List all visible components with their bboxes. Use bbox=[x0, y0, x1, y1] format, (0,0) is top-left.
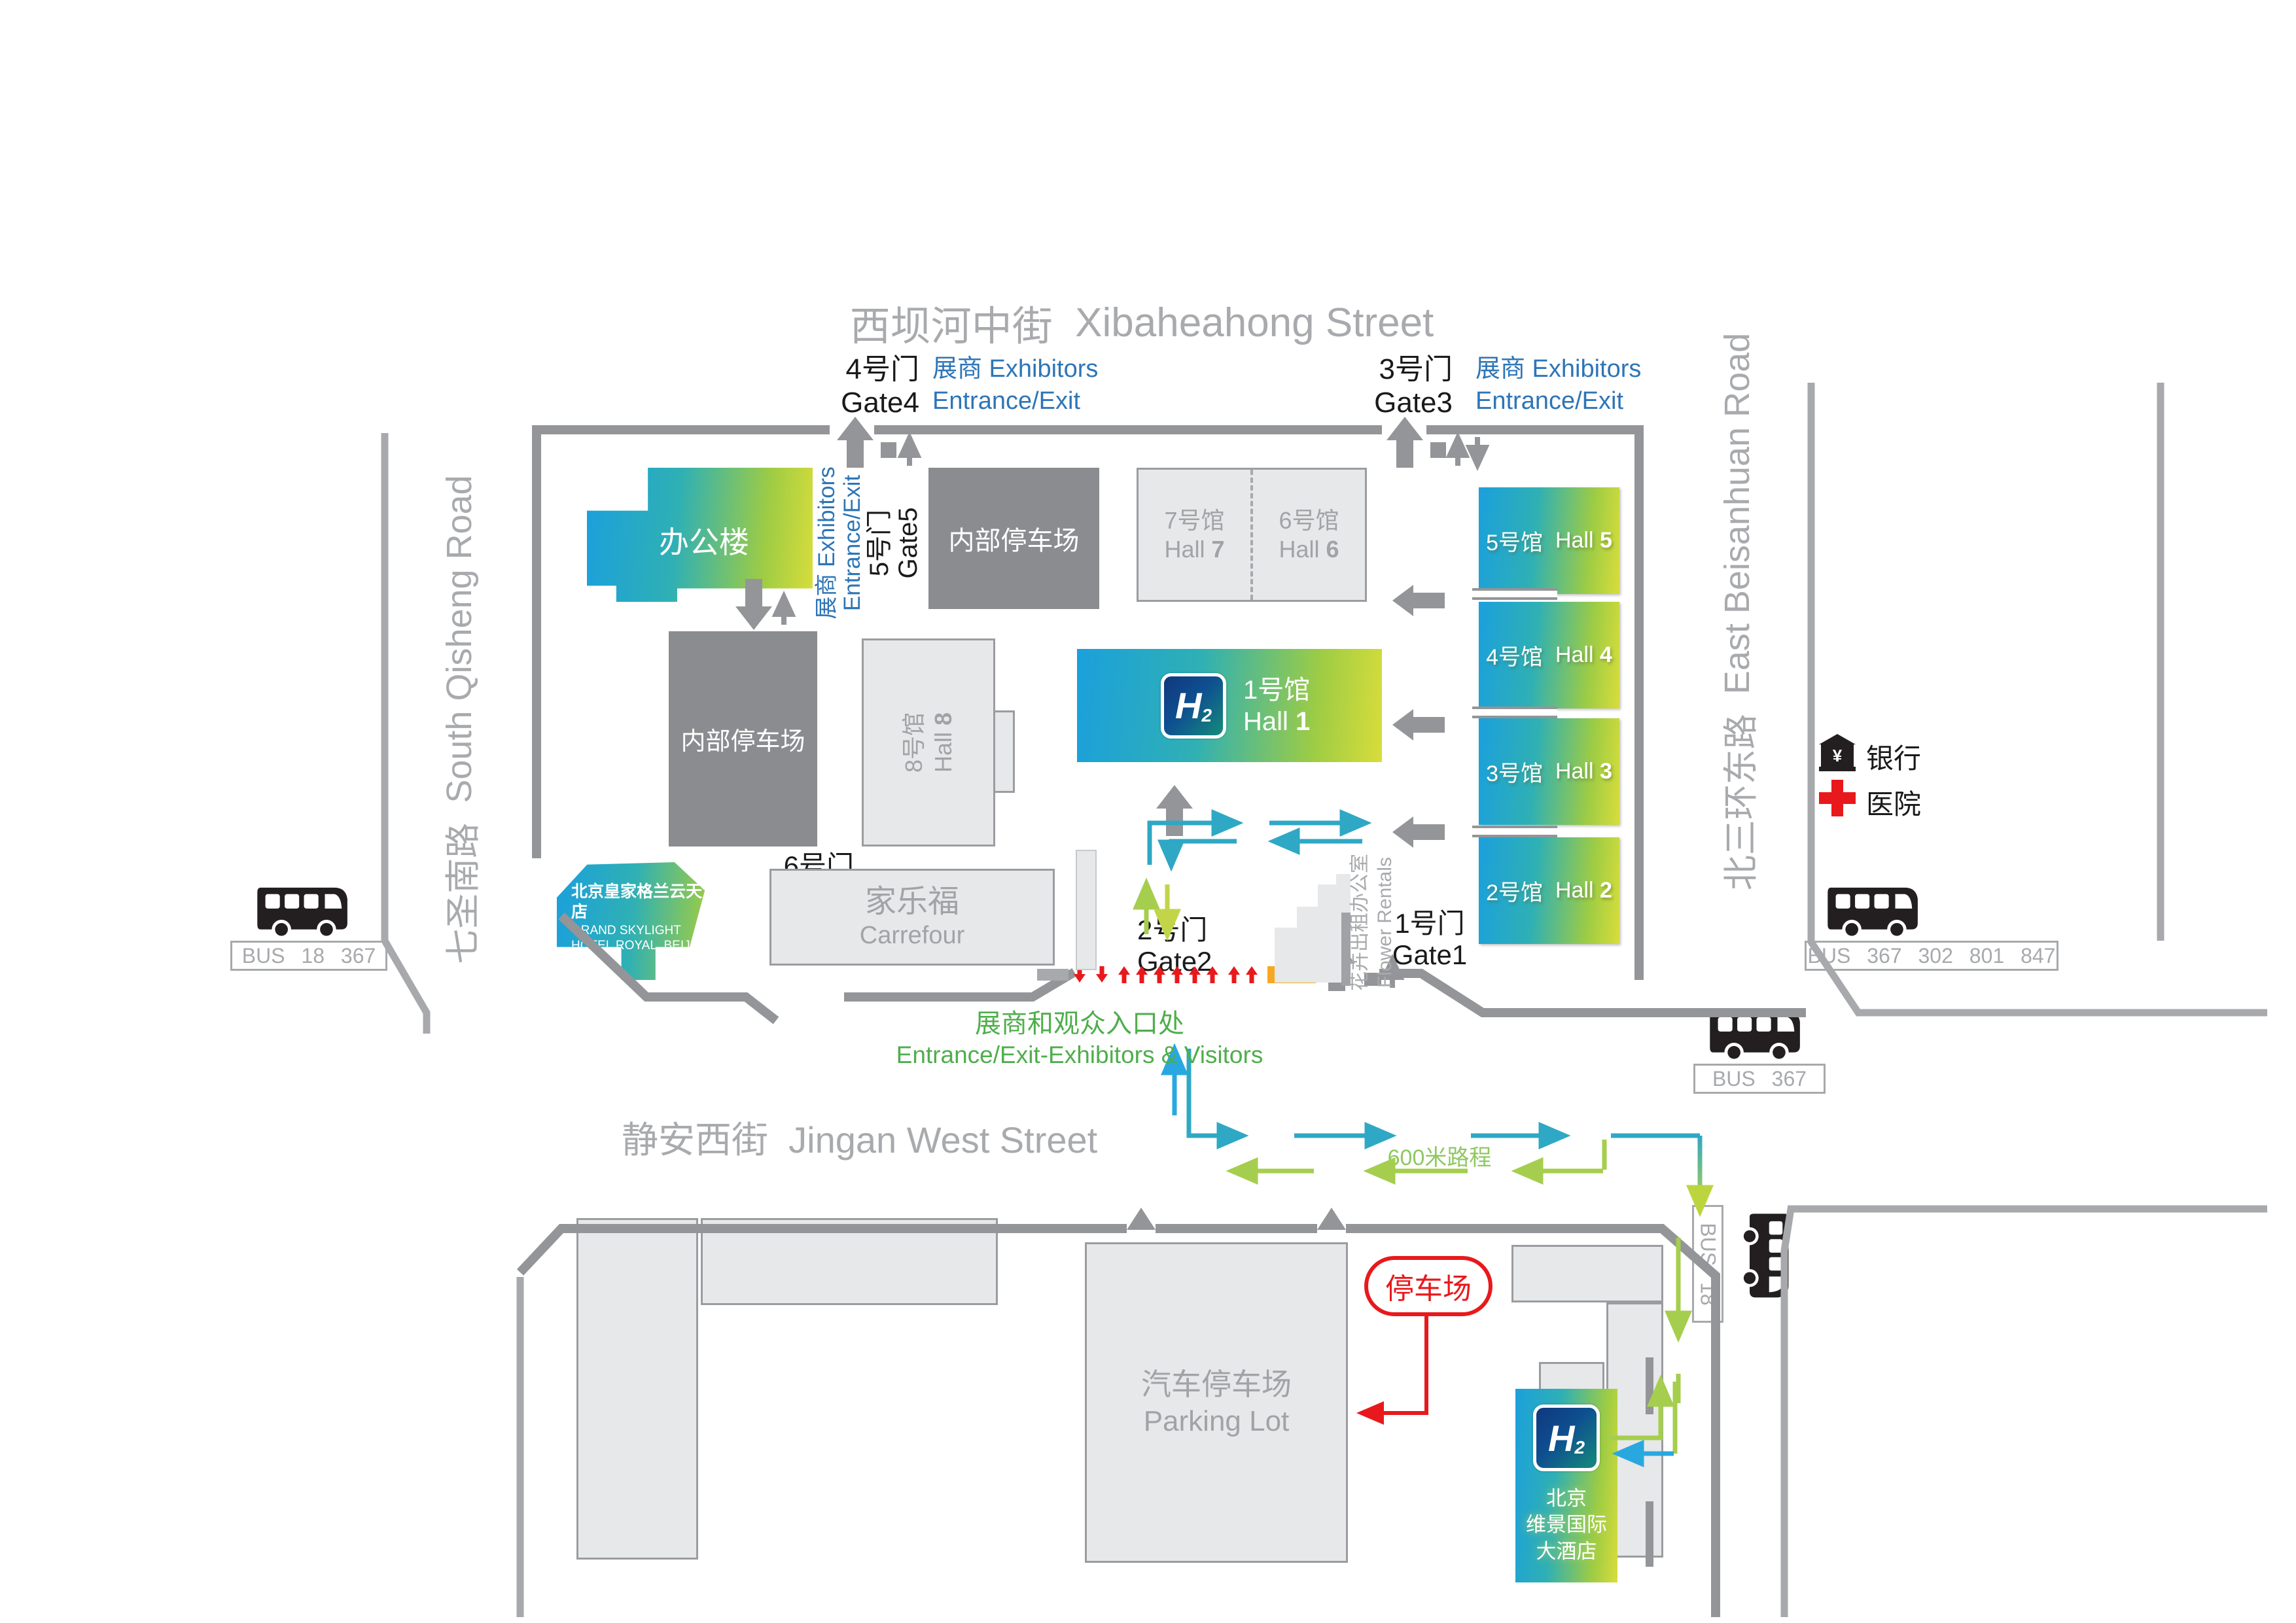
gate3-exhibitors-label: 展商 Exhibitors Entrance/Exit bbox=[1475, 353, 1641, 418]
hall-8-label: 8号馆 Hall 8 bbox=[899, 712, 958, 773]
halls-7-6: 7号馆 Hall 7 6号馆 Hall 6 bbox=[1137, 468, 1367, 602]
bus-icon-west bbox=[256, 884, 355, 941]
hall-1: H 2 1号馆 Hall 1 bbox=[1077, 649, 1382, 762]
gate2-label: 2号门 Gate2 bbox=[1137, 915, 1212, 978]
hall-8-notch bbox=[993, 710, 1015, 793]
hall-1-label: 1号馆 Hall 1 bbox=[1243, 674, 1310, 737]
driveway-triangles bbox=[1127, 1208, 1346, 1230]
orange-entrance-strip bbox=[1267, 966, 1316, 983]
bus-stop-southeast: BUS 367 bbox=[1693, 1064, 1826, 1094]
flower-rentals-label: 花卉出租办公室 Flower Rentals bbox=[1348, 850, 1400, 994]
distance-label: 600米路程 bbox=[1368, 1140, 1511, 1172]
hall-7: 7号馆 Hall 7 bbox=[1139, 470, 1250, 600]
grand-skylight-hotel: 北京皇家格兰云天大酒店 GRAND SKYLIGHT HOTEL ROYAL, … bbox=[557, 862, 747, 980]
bank-icon: ¥ bbox=[1819, 734, 1856, 772]
internal-parking-west: 内部停车场 bbox=[669, 631, 817, 846]
hotel-h2: H 2 北京 维景国际 大酒店 bbox=[1515, 1389, 1617, 1582]
hall-4: 4号馆 Hall 4 bbox=[1479, 602, 1619, 708]
hotel-h2-label: 北京 维景国际 大酒店 bbox=[1526, 1486, 1607, 1565]
hotel-annex bbox=[1539, 1362, 1604, 1391]
bus-stop-south: BUS 18 bbox=[1692, 1205, 1723, 1323]
gate5-exhibitors-label: 展商 Exhibitors Entrance/Exit 5号门 Gate5 bbox=[815, 438, 926, 648]
svg-text:¥: ¥ bbox=[1833, 746, 1843, 765]
hospital-icon bbox=[1819, 780, 1856, 816]
hospital-label: 医院 bbox=[1866, 782, 1921, 822]
h2-logo-hotel: H 2 bbox=[1533, 1405, 1600, 1471]
office-building: 办公楼 bbox=[587, 468, 813, 602]
south-building-wide bbox=[701, 1218, 998, 1305]
parking-lot: 汽车停车场 Parking Lot bbox=[1085, 1242, 1348, 1563]
hall-2: 2号馆 Hall 2 bbox=[1479, 837, 1619, 944]
flower-rentals-building bbox=[1275, 874, 1351, 983]
visitor-entrance-label: 展商和观众入口处 Entrance/Exit-Exhibitors & Visi… bbox=[851, 1007, 1309, 1070]
street-label-north: 西坝河中街 Xibaheahong Street bbox=[838, 293, 1446, 352]
bus-stop-west: BUS 18 367 bbox=[230, 941, 387, 971]
bus-stop-east: BUS 367 302 801 847 bbox=[1805, 941, 2058, 971]
parking-callout: 停车场 bbox=[1364, 1256, 1492, 1316]
boundary-stub bbox=[1037, 969, 1069, 981]
gate4-label: 4号门 Gate4 bbox=[808, 353, 919, 419]
bus-icon-south bbox=[1739, 1213, 1792, 1304]
gate3-label: 3号门 Gate3 bbox=[1358, 353, 1453, 419]
internal-parking-north: 内部停车场 bbox=[928, 468, 1099, 609]
gate4-exhibitors-label: 展商 Exhibitors Entrance/Exit bbox=[932, 353, 1098, 418]
street-label-west: 七圣南路 South Qisheng Road bbox=[440, 425, 479, 1014]
south-building-tall bbox=[576, 1218, 698, 1560]
hall-6: 6号馆 Hall 6 bbox=[1253, 470, 1365, 600]
carrefour: 家乐福 Carrefour bbox=[769, 869, 1055, 966]
carrefour-side-annex bbox=[1076, 850, 1096, 969]
hall-3: 3号馆 Hall 3 bbox=[1479, 718, 1619, 825]
bus-icon-east bbox=[1827, 884, 1925, 941]
street-label-south: 静安西街 Jingan West Street bbox=[622, 1111, 1097, 1164]
hall-connector bbox=[1472, 707, 1557, 718]
exhibition-center-map: 西坝河中街 Xibaheahong Street 静安西街 Jingan Wes… bbox=[0, 0, 2296, 1623]
hall-5: 5号馆 Hall 5 bbox=[1479, 487, 1619, 594]
parking-callout-arrow bbox=[1362, 1316, 1426, 1413]
hall-connector bbox=[1472, 826, 1557, 837]
hall-8: 8号馆 Hall 8 bbox=[862, 638, 995, 846]
bank-label: 银行 bbox=[1866, 737, 1921, 777]
bus-icon-southeast bbox=[1709, 1007, 1807, 1064]
hall-connector bbox=[1472, 588, 1557, 600]
office-building-label: 办公楼 bbox=[659, 519, 749, 562]
h2-logo-hall1: H 2 bbox=[1161, 673, 1226, 739]
parking-lot-north-wing bbox=[1511, 1245, 1663, 1302]
street-label-east: 北三环东路 East Beisanhuan Road bbox=[1718, 317, 1757, 906]
